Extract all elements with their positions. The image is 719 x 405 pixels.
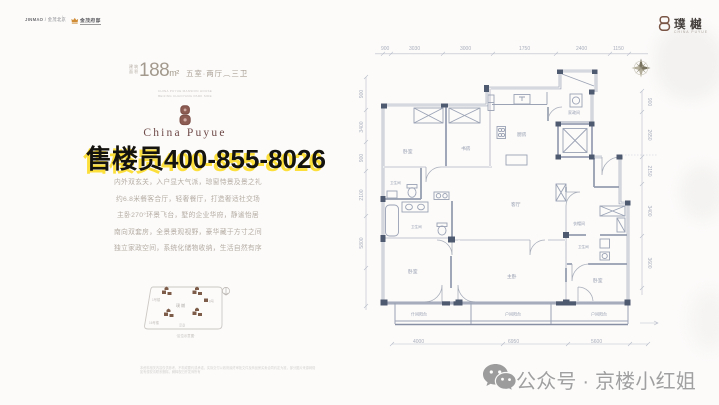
svg-text:5600: 5600 [591,339,602,345]
svg-text:4000: 4000 [413,339,424,345]
svg-text:5800: 5800 [359,237,365,248]
svg-text:2150: 2150 [646,165,652,176]
svg-text:厨房: 厨房 [517,131,527,138]
svg-text:3000: 3000 [460,46,471,52]
svg-text:900: 900 [381,46,390,52]
svg-text:8号: 8号 [209,299,214,304]
svg-text:3030: 3030 [409,46,420,52]
svg-text:户间阳台: 户间阳台 [505,311,521,317]
svg-text:1号楼: 1号楼 [152,297,161,302]
svg-text:6950: 6950 [508,339,519,345]
svg-text:·区位示意图·: ·区位示意图· [176,333,195,338]
svg-text:3400: 3400 [359,121,365,132]
svg-text:16号楼: 16号楼 [149,320,160,325]
svg-text:2100: 2100 [359,189,365,200]
svg-text:3400: 3400 [646,205,652,216]
svg-text:900: 900 [359,154,365,163]
svg-text:衣帽间: 衣帽间 [573,220,585,226]
svg-text:卧室: 卧室 [408,268,418,275]
svg-text:900: 900 [646,98,652,107]
svg-text:示意: 示意 [179,323,185,328]
svg-text:户间阳台: 户间阳台 [591,311,607,317]
svg-text:璞 樾: 璞 樾 [176,302,185,308]
svg-text:主卧: 主卧 [507,273,517,280]
svg-text:1750: 1750 [519,46,530,52]
svg-text:卫生间: 卫生间 [411,224,422,229]
svg-text:1150: 1150 [613,46,624,52]
svg-text:2400: 2400 [576,46,587,52]
svg-text:家政间: 家政间 [568,109,580,115]
svg-text:900: 900 [359,90,365,99]
svg-text:3600: 3600 [646,257,652,268]
svg-text:客厅: 客厅 [511,201,521,208]
svg-text:什间阳台: 什间阳台 [411,311,427,317]
svg-text:卧室: 卧室 [593,277,603,284]
svg-text:书房: 书房 [461,145,471,152]
svg-text:2650: 2650 [646,129,652,140]
svg-text:卧室: 卧室 [403,148,413,155]
svg-text:卫生间: 卫生间 [390,180,401,185]
svg-text:卫生间: 卫生间 [578,244,589,249]
